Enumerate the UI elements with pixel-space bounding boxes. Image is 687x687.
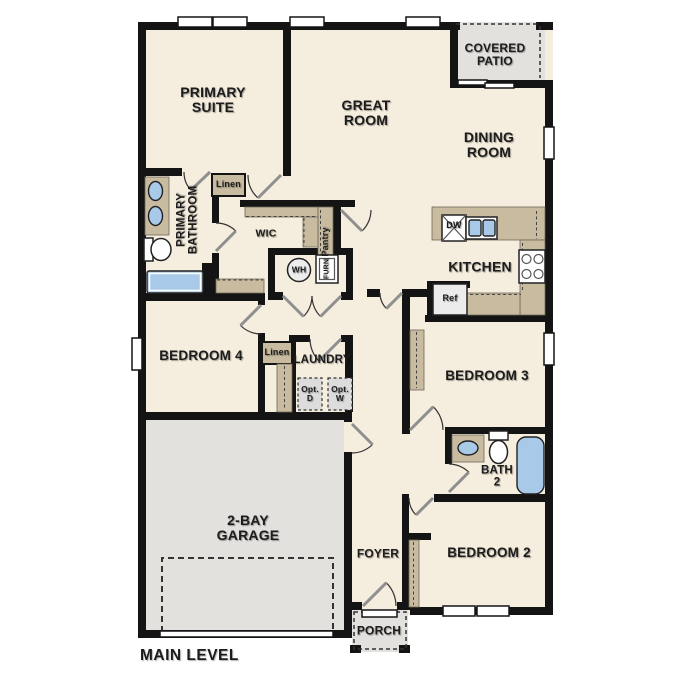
- fixture-label-opt-washer: Opt. W: [331, 385, 349, 403]
- room-label-pantry: Pantry: [321, 227, 331, 256]
- bath2-tub: [517, 437, 544, 494]
- room-label-porch: PORCH: [357, 625, 401, 638]
- room-label-great-room: GREAT ROOM: [342, 98, 391, 128]
- room-label-covered-patio: COVERED PATIO: [465, 42, 526, 68]
- fixture-label-furnace: FURN: [323, 259, 330, 279]
- room-label-bedroom-3: BEDROOM 3: [445, 369, 529, 383]
- plan-title: MAIN LEVEL: [140, 647, 239, 665]
- kitchen-counter-bottom: [467, 293, 520, 315]
- patio-slider-panel: [458, 80, 487, 85]
- wic-shelf-right: [303, 217, 318, 247]
- window: [443, 606, 475, 616]
- room-label-garage: 2-BAY GARAGE: [217, 513, 280, 543]
- window: [213, 17, 247, 27]
- room-label-bath-2: BATH 2: [481, 465, 513, 490]
- toilet-tank: [489, 431, 508, 440]
- garage-overhead-door: [160, 631, 333, 637]
- fixture-label-water-heater: WH: [292, 265, 307, 274]
- window: [544, 127, 554, 159]
- room-label-bedroom-2: BEDROOM 2: [447, 546, 531, 560]
- window: [544, 333, 554, 365]
- wic-shelf-top: [245, 207, 318, 217]
- vanity-sink: [149, 182, 163, 201]
- closet-label-linen-2: Linen: [265, 348, 290, 358]
- room-label-primary-bathroom: PRIMARY BATHROOM: [176, 186, 201, 254]
- room-label-wic: WIC: [255, 228, 276, 239]
- room-label-foyer: FOYER: [357, 548, 399, 561]
- sink-basin-right: [483, 220, 495, 236]
- window: [406, 17, 440, 27]
- room-label-primary-suite: PRIMARY SUITE: [180, 85, 245, 115]
- bath2-sink: [458, 441, 478, 455]
- window: [290, 17, 324, 27]
- primary-bathtub: [147, 271, 203, 293]
- room-label-laundry: LAUNDRY: [293, 354, 350, 366]
- room-label-dining-room: DINING ROOM: [464, 130, 514, 160]
- patio-slider-panel: [485, 83, 514, 88]
- floor-plan: PRIMARY SUITE GREAT ROOM DINING ROOM COV…: [0, 0, 687, 687]
- toilet-bowl: [151, 239, 171, 261]
- room-label-bedroom-4: BEDROOM 4: [159, 349, 243, 363]
- vanity-sink: [149, 207, 163, 226]
- garage-door-opening: [344, 422, 352, 452]
- window: [178, 17, 212, 27]
- fixture-label-opt-dryer: Opt. D: [301, 385, 319, 403]
- toilet-bowl: [490, 441, 508, 464]
- wic-shelf-bottom: [216, 279, 264, 293]
- room-label-kitchen: KITCHEN: [448, 260, 512, 275]
- fixture-label-refrigerator: Ref: [442, 294, 457, 304]
- window: [477, 606, 509, 616]
- window: [132, 338, 142, 370]
- front-door-threshold: [362, 610, 397, 617]
- closet-label-linen-1: Linen: [216, 180, 241, 190]
- fixture-label-dishwasher: DW: [446, 221, 461, 231]
- sink-basin-left: [469, 220, 481, 236]
